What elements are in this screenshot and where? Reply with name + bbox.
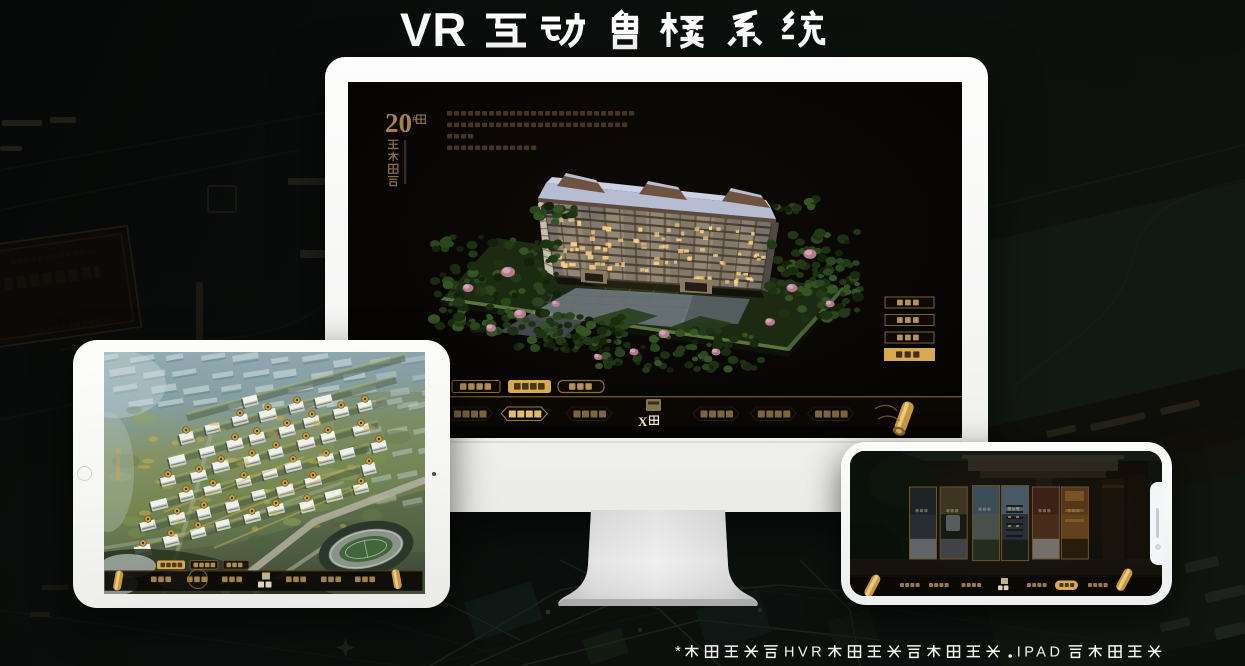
svg-text:*: * bbox=[675, 643, 681, 660]
svg-text:20: 20 bbox=[385, 108, 412, 138]
svg-text:VR: VR bbox=[400, 5, 467, 56]
svg-text:HVR: HVR bbox=[784, 645, 825, 661]
svg-text:IPAD: IPAD bbox=[1017, 645, 1064, 661]
svg-text:X: X bbox=[638, 414, 648, 429]
